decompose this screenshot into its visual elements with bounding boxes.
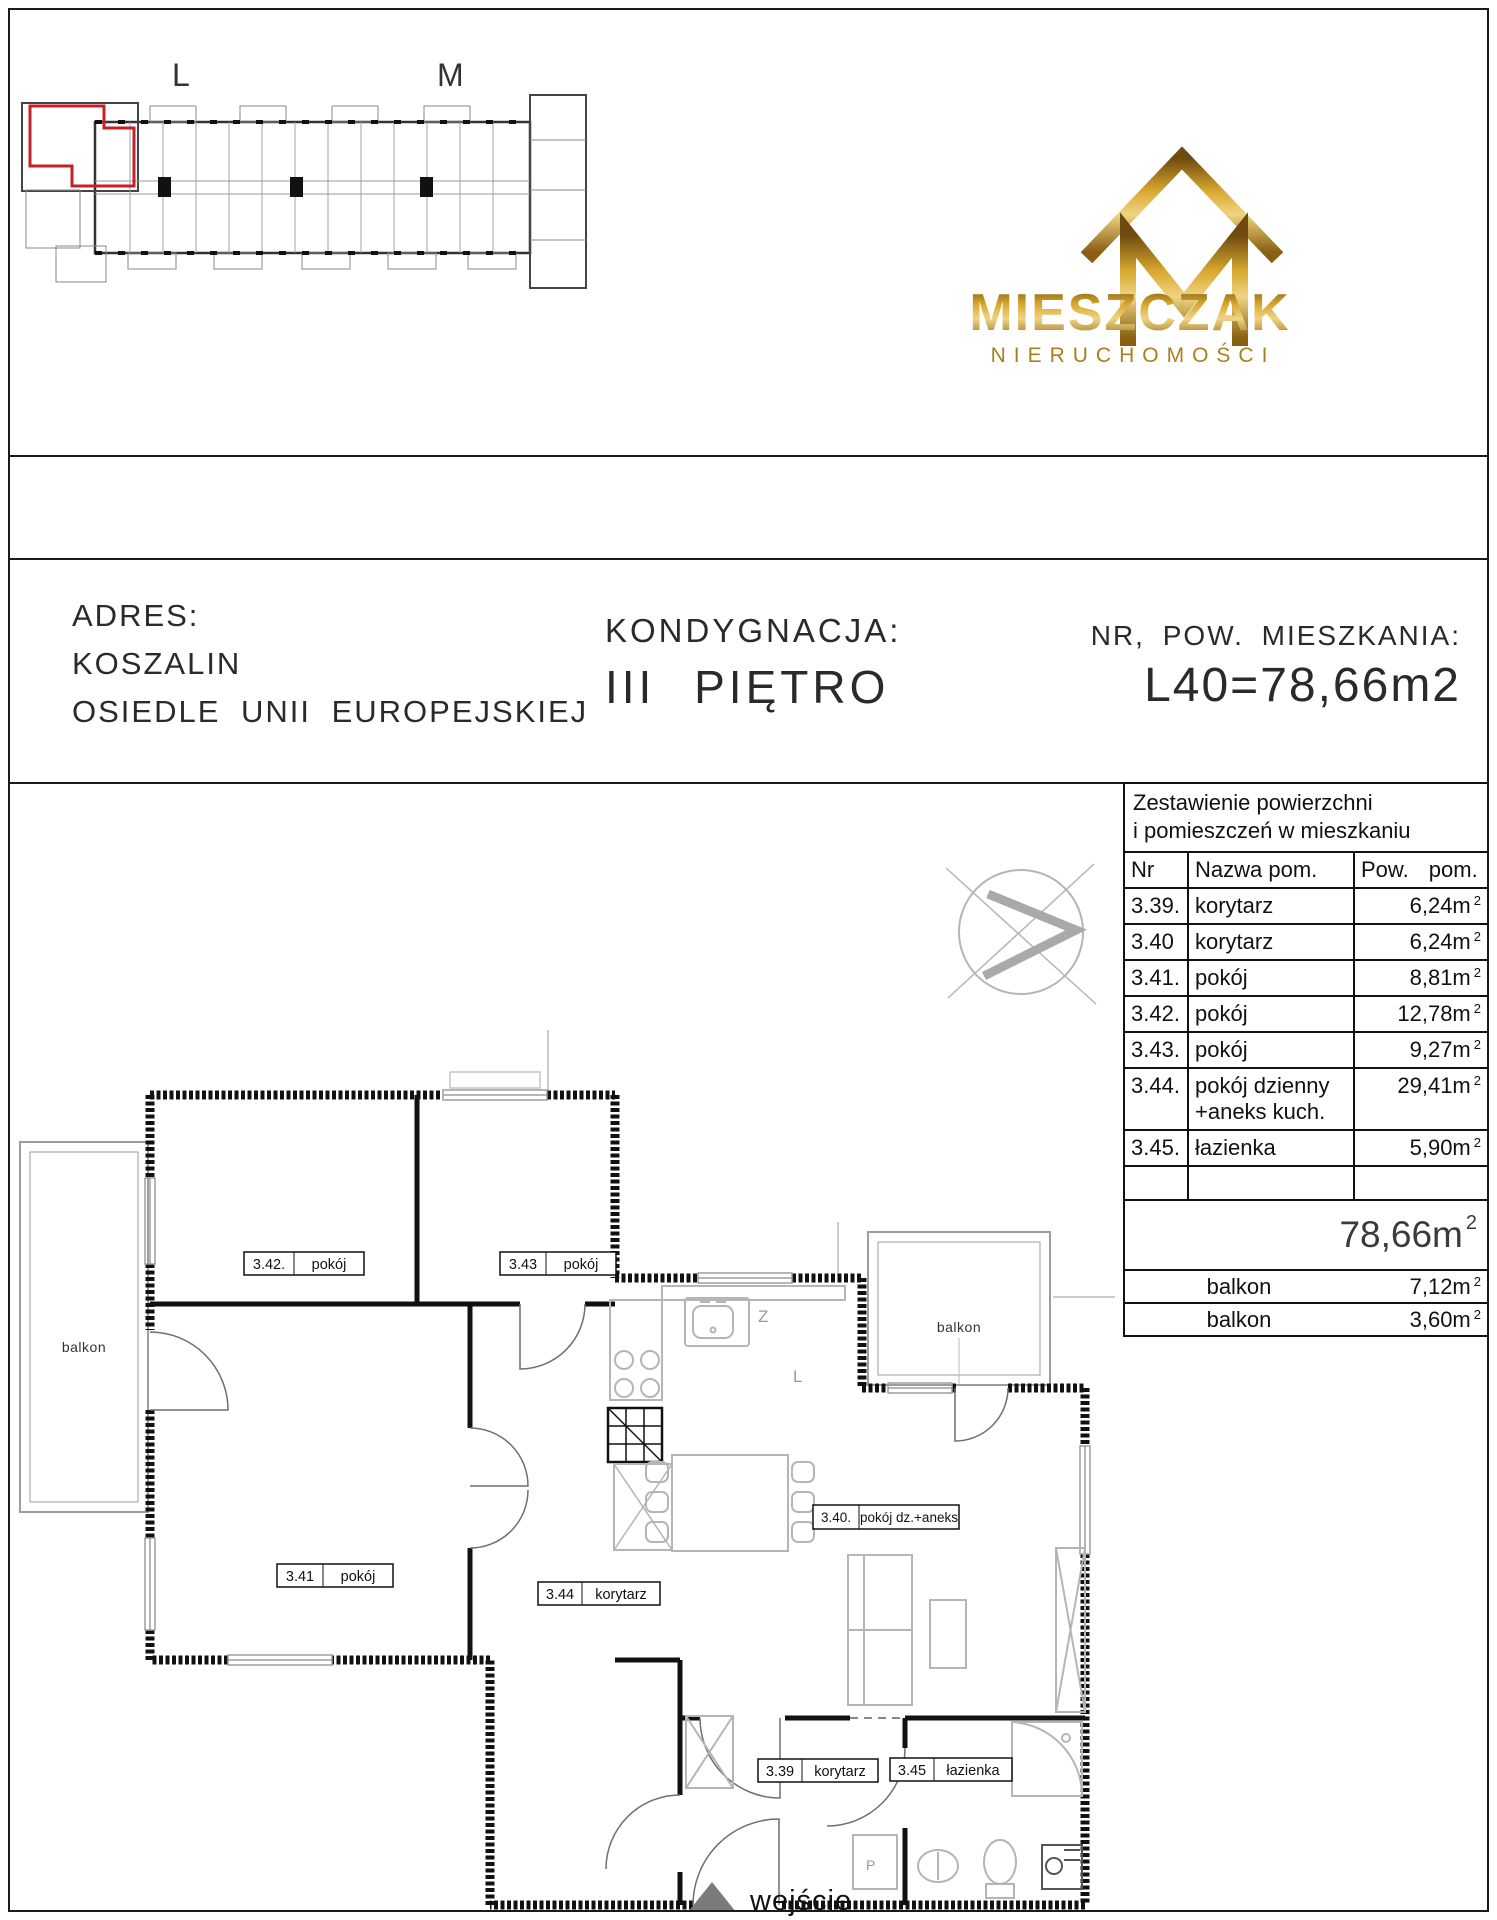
balcony-left xyxy=(20,1142,148,1512)
balcony-left-label: balkon xyxy=(62,1339,106,1355)
svg-text:3.39: 3.39 xyxy=(766,1764,794,1780)
svg-text:łazienka: łazienka xyxy=(946,1763,1000,1779)
balcony-right-label: balkon xyxy=(937,1319,981,1335)
toilet xyxy=(984,1840,1016,1884)
room-label-339: 3.39 korytarz xyxy=(758,1759,878,1782)
svg-text:pokój dz.+aneks: pokój dz.+aneks xyxy=(860,1510,958,1525)
bathroom-fixtures xyxy=(853,1722,1082,1898)
room-label-345: 3.45 łazienka xyxy=(890,1758,1012,1781)
svg-text:3.40.: 3.40. xyxy=(821,1510,851,1525)
dining-set xyxy=(646,1455,814,1551)
kitchen-mark: L xyxy=(793,1367,802,1386)
compass-icon xyxy=(946,864,1096,1004)
svg-text:3.41: 3.41 xyxy=(286,1569,314,1585)
room-label-342: 3.42. pokój xyxy=(244,1252,364,1275)
interior-walls xyxy=(150,1095,1085,1905)
apartment-floor-plan: 3.42. pokój 3.43 pokój 3.41 pokój 3.44 k… xyxy=(0,0,1497,1920)
room-label-343: 3.43 pokój xyxy=(500,1252,616,1275)
svg-text:pokój: pokój xyxy=(564,1257,599,1273)
svg-text:3.45: 3.45 xyxy=(898,1763,926,1779)
svg-text:pokój: pokój xyxy=(312,1257,347,1273)
sink-mark: Z xyxy=(758,1307,768,1326)
washer-mark: P xyxy=(866,1857,875,1873)
coffee-table xyxy=(930,1600,966,1668)
svg-text:pokój: pokój xyxy=(341,1569,376,1585)
apartment-card-page: L M MIESZCZAK NIERUCHOMOŚCI ADRES: KOSZA… xyxy=(0,0,1497,1920)
room-label-344: 3.44 korytarz xyxy=(538,1582,660,1605)
room-labels: 3.42. pokój 3.43 pokój 3.41 pokój 3.44 k… xyxy=(244,1252,1012,1782)
room-label-341: 3.41 pokój xyxy=(277,1564,393,1587)
corridor-wardrobe xyxy=(686,1716,733,1788)
kitchen-area xyxy=(610,1286,845,1400)
installation-shaft xyxy=(608,1408,662,1462)
svg-text:korytarz: korytarz xyxy=(814,1764,866,1780)
stove-burners xyxy=(615,1351,659,1397)
svg-text:3.43: 3.43 xyxy=(509,1257,537,1273)
entrance-label: wejście xyxy=(749,1885,852,1917)
svg-text:3.42.: 3.42. xyxy=(253,1257,285,1273)
svg-text:3.44: 3.44 xyxy=(546,1587,574,1603)
room-label-340: 3.40. pokój dz.+aneks xyxy=(813,1505,959,1529)
living-room-furniture xyxy=(848,1548,1085,1712)
svg-text:korytarz: korytarz xyxy=(595,1587,647,1603)
exterior-walls xyxy=(150,1095,1085,1905)
